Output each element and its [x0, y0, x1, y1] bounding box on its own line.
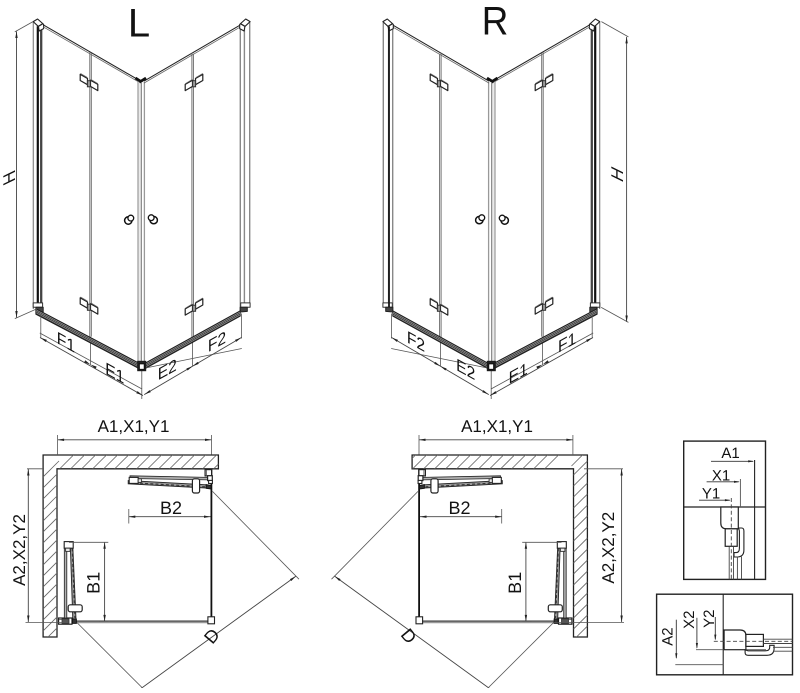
svg-text:A2: A2	[660, 627, 677, 645]
svg-text:R: R	[482, 0, 509, 44]
svg-text:A2,X2,Y2: A2,X2,Y2	[10, 514, 29, 586]
svg-text:A1,X1,Y1: A1,X1,Y1	[98, 417, 170, 436]
svg-text:A1: A1	[721, 445, 739, 462]
svg-text:B1: B1	[84, 572, 104, 594]
svg-text:B2: B2	[160, 498, 182, 518]
svg-text:B1: B1	[505, 572, 525, 594]
svg-text:X2: X2	[681, 611, 698, 629]
svg-text:B2: B2	[448, 498, 470, 518]
svg-text:A1,X1,Y1: A1,X1,Y1	[461, 417, 533, 436]
svg-text:A2,X2,Y2: A2,X2,Y2	[599, 512, 618, 584]
svg-text:L: L	[128, 2, 150, 46]
